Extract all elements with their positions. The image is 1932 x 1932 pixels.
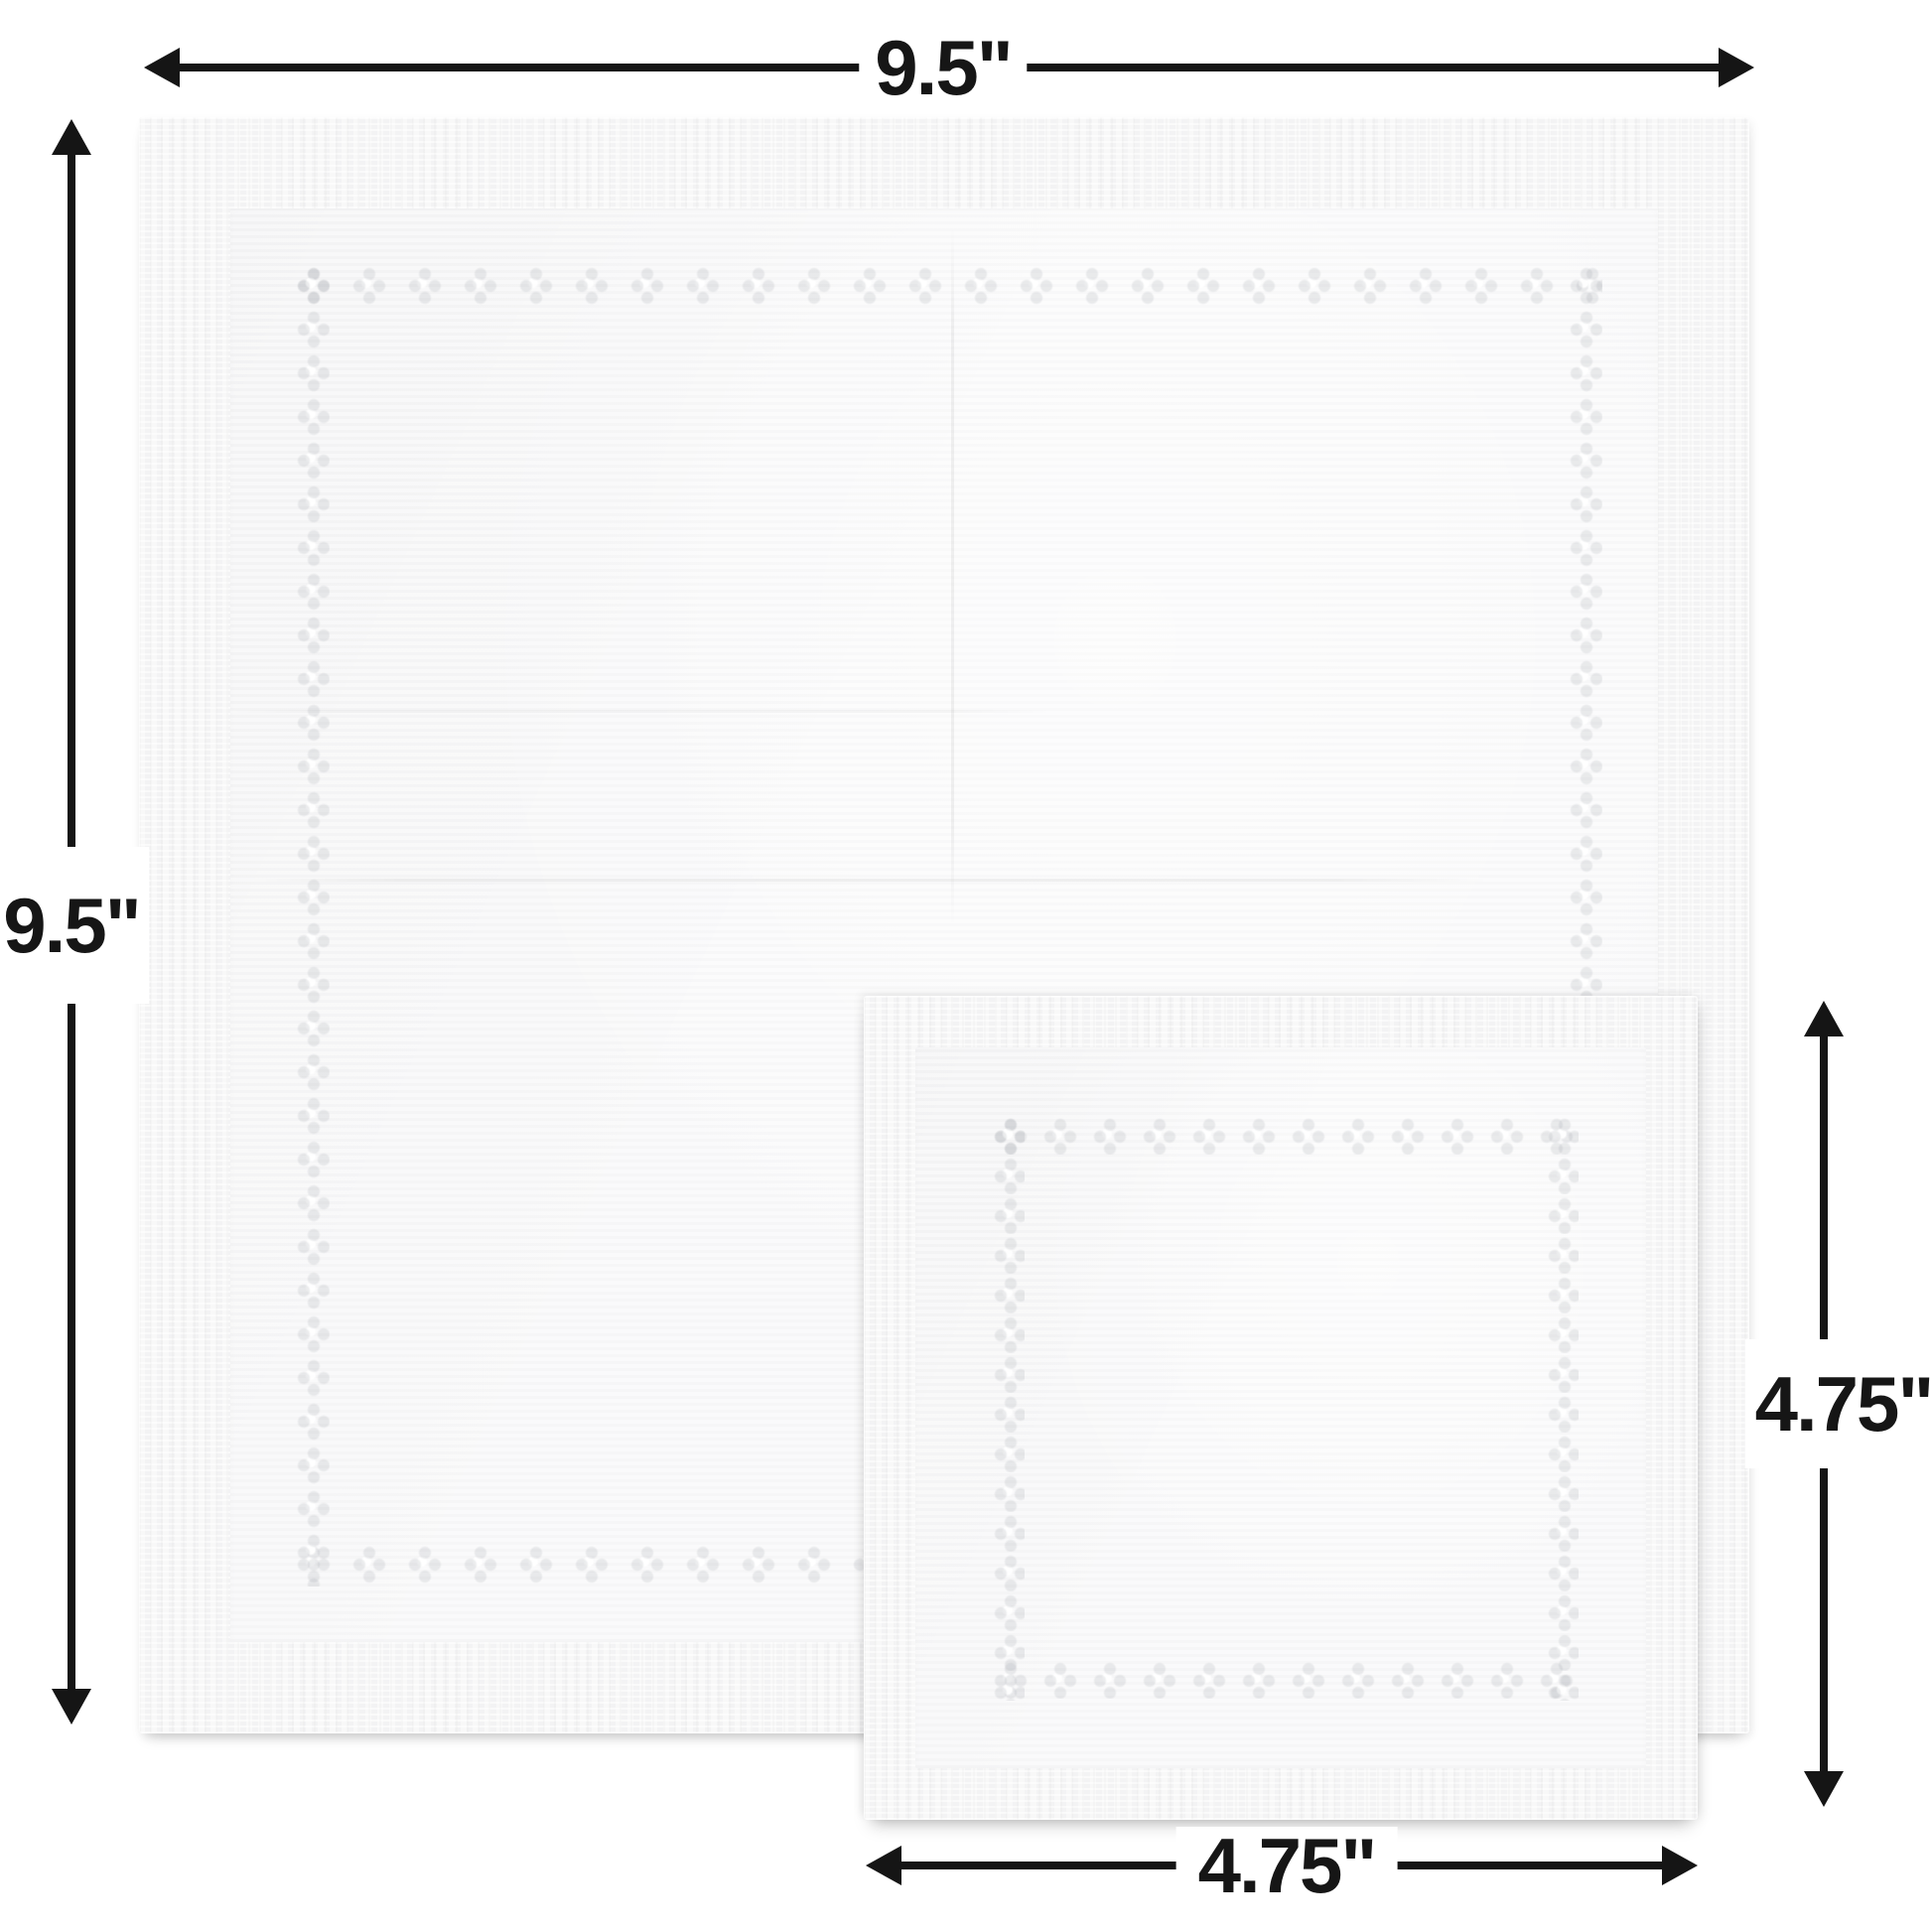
arrowhead-down-icon [1804,1771,1844,1807]
small-napkin-image [864,996,1698,1820]
small-napkin-emboss-border-right [1537,1115,1579,1701]
small-napkin-height-dimension: 4.75" [1804,1001,1844,1807]
arrowhead-left-icon [866,1846,901,1885]
large-napkin-fold-crease-horizontal [248,879,1489,882]
small-napkin-emboss-border-bottom [983,1659,1579,1701]
large-napkin-height-dimension: 9.5" [52,119,91,1725]
small-napkin-width-label: 4.75" [1176,1827,1398,1904]
small-napkin-emboss-border-top [983,1115,1579,1157]
arrowhead-up-icon [52,119,91,155]
large-napkin-fold-crease-horizontal-2 [228,710,1052,713]
large-napkin-emboss-border-top [286,264,1602,308]
large-napkin-height-label: 9.5" [0,847,150,1004]
small-napkin-emboss-border-left [983,1115,1025,1701]
dimension-diagram: 9.5" 9.5" 4.75" 4.75" [0,0,1932,1932]
arrowhead-up-icon [1804,1001,1844,1036]
large-napkin-width-dimension: 9.5" [144,47,1754,88]
large-napkin-emboss-border-left [286,264,330,1587]
arrowhead-down-icon [52,1689,91,1725]
small-napkin-height-label: 4.75" [1745,1339,1932,1468]
large-napkin-width-label: 9.5" [859,29,1027,106]
arrowhead-right-icon [1719,48,1754,87]
large-napkin-fold-crease-vertical [951,226,954,926]
small-napkin-width-dimension: 4.75" [866,1845,1698,1886]
arrowhead-right-icon [1662,1846,1698,1885]
arrowhead-left-icon [144,48,180,87]
